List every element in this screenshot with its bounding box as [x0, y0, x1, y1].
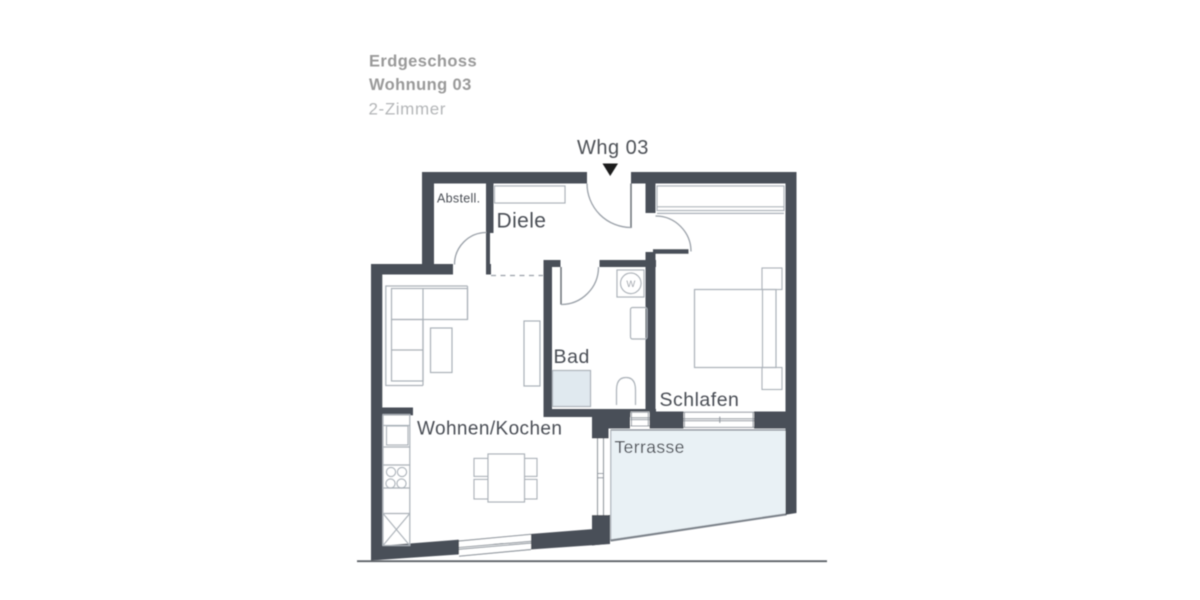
svg-text:Terrasse: Terrasse — [615, 437, 685, 457]
svg-text:Whg 03: Whg 03 — [577, 137, 649, 159]
svg-text:Schlafen: Schlafen — [660, 389, 740, 411]
svg-text:2-Zimmer: 2-Zimmer — [369, 100, 447, 119]
svg-text:W: W — [626, 279, 635, 290]
svg-text:Bad: Bad — [554, 346, 591, 368]
svg-text:Wohnen/Kochen: Wohnen/Kochen — [417, 419, 562, 440]
svg-text:Erdgeschoss: Erdgeschoss — [369, 53, 477, 71]
svg-text:Diele: Diele — [497, 210, 547, 233]
svg-text:Wohnung 03: Wohnung 03 — [369, 76, 472, 94]
svg-text:Abstell.: Abstell. — [437, 192, 480, 206]
